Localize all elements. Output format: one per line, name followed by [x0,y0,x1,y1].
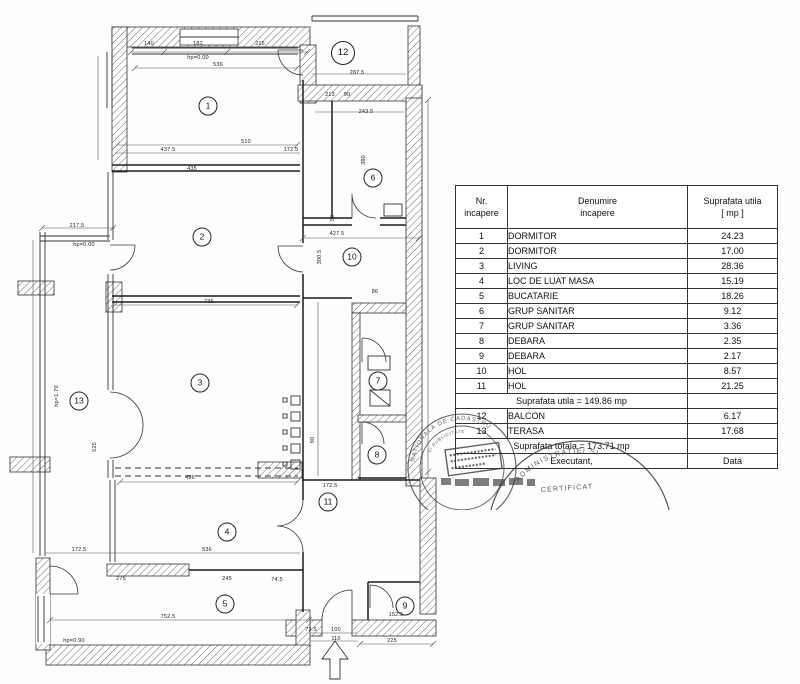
subtotal-row: Suprafata utila = 149.86 mp [456,394,778,409]
cell-area: 3.36 [688,319,778,334]
total-row-label: Suprafata totala = 173.71 mp [456,439,688,454]
table-row: 12BALCON6.17 [456,409,778,424]
cell-name: BALCON [508,409,688,424]
table-row: 1DORMITOR24.23 [456,229,778,244]
area-table: Nr. incapere Denumire incapere Suprafata… [455,185,778,469]
cell-name: DORMITOR [508,244,688,259]
table-row: 8DEBARA2.35 [456,334,778,349]
cell-name: GRUP SANITAR [508,319,688,334]
table-row: 4LOC DE LUAT MASA15.19 [456,274,778,289]
area-table-body: 1DORMITOR24.232DORMITOR17.003LIVING28.36… [456,229,778,469]
cell-area: 6.17 [688,409,778,424]
radiator-group [283,396,300,469]
table-row: 2DORMITOR17.00 [456,244,778,259]
cell-nr: 13 [456,424,508,439]
cell-nr: 12 [456,409,508,424]
cell-area: 17.00 [688,244,778,259]
cell-area: 2.35 [688,334,778,349]
total-row: Suprafata totala = 173.71 mp [456,439,778,454]
doors-group [50,50,393,620]
certificat-text: CERTIFICAT [541,483,594,494]
executant-row: Executant,Data [456,454,778,469]
table-row: 5BUCATARIE18.26 [456,289,778,304]
cell-nr: 11 [456,379,508,394]
header-nr: Nr. incapere [456,186,508,229]
header-denumire: Denumire incapere [508,186,688,229]
cell-area: 17.68 [688,424,778,439]
table-row: 6GRUP SANITAR9.12 [456,304,778,319]
cell-area: 28.36 [688,259,778,274]
floor-plan-drawing [0,0,450,684]
cell-nr: 8 [456,334,508,349]
cell-name: DEBARA [508,349,688,364]
cell-nr: 10 [456,364,508,379]
cell-nr: 3 [456,259,508,274]
cell-area: 21.25 [688,379,778,394]
cell-area: 2.17 [688,349,778,364]
total-row-right-cell [688,439,778,454]
cell-area: 24.23 [688,229,778,244]
stamp-smudge [441,478,535,486]
cell-name: LIVING [508,259,688,274]
subtotal-row-right-cell [688,394,778,409]
table-header-row: Nr. incapere Denumire incapere Suprafata… [456,186,778,229]
cell-name: GRUP SANITAR [508,304,688,319]
table-row: 3LIVING28.36 [456,259,778,274]
table-row: 10HOL8.57 [456,364,778,379]
cell-area: 15.19 [688,274,778,289]
cell-nr: 2 [456,244,508,259]
cell-nr: 9 [456,349,508,364]
cell-name: HOL [508,379,688,394]
executant-row-right-cell: Data [688,454,778,469]
header-suprafata: Suprafata utila [ mp ] [688,186,778,229]
subtotal-row-label: Suprafata utila = 149.86 mp [456,394,688,409]
cell-nr: 1 [456,229,508,244]
entrance-arrow [322,641,348,679]
cell-name: DORMITOR [508,229,688,244]
executant-row-label: Executant, [456,454,688,469]
scanned-floor-plan-page: 12345678910111213140182215hp=0.00536287.… [0,0,800,684]
table-row: 9DEBARA2.17 [456,349,778,364]
cell-name: BUCATARIE [508,289,688,304]
windows-group [36,16,418,644]
table-row: 11HOL21.25 [456,379,778,394]
cell-area: 18.26 [688,289,778,304]
cell-nr: 4 [456,274,508,289]
table-row: 13TERASA17.68 [456,424,778,439]
walls-group [10,26,436,665]
cell-area: 9.12 [688,304,778,319]
table-row: 7GRUP SANITAR3.36 [456,319,778,334]
cell-nr: 6 [456,304,508,319]
cell-name: DEBARA [508,334,688,349]
cell-area: 8.57 [688,364,778,379]
partitions-group [112,80,420,620]
cell-name: LOC DE LUAT MASA [508,274,688,289]
cell-nr: 7 [456,319,508,334]
cell-nr: 5 [456,289,508,304]
cell-name: TERASA [508,424,688,439]
cell-name: HOL [508,364,688,379]
dimension-lines-group [33,49,436,647]
